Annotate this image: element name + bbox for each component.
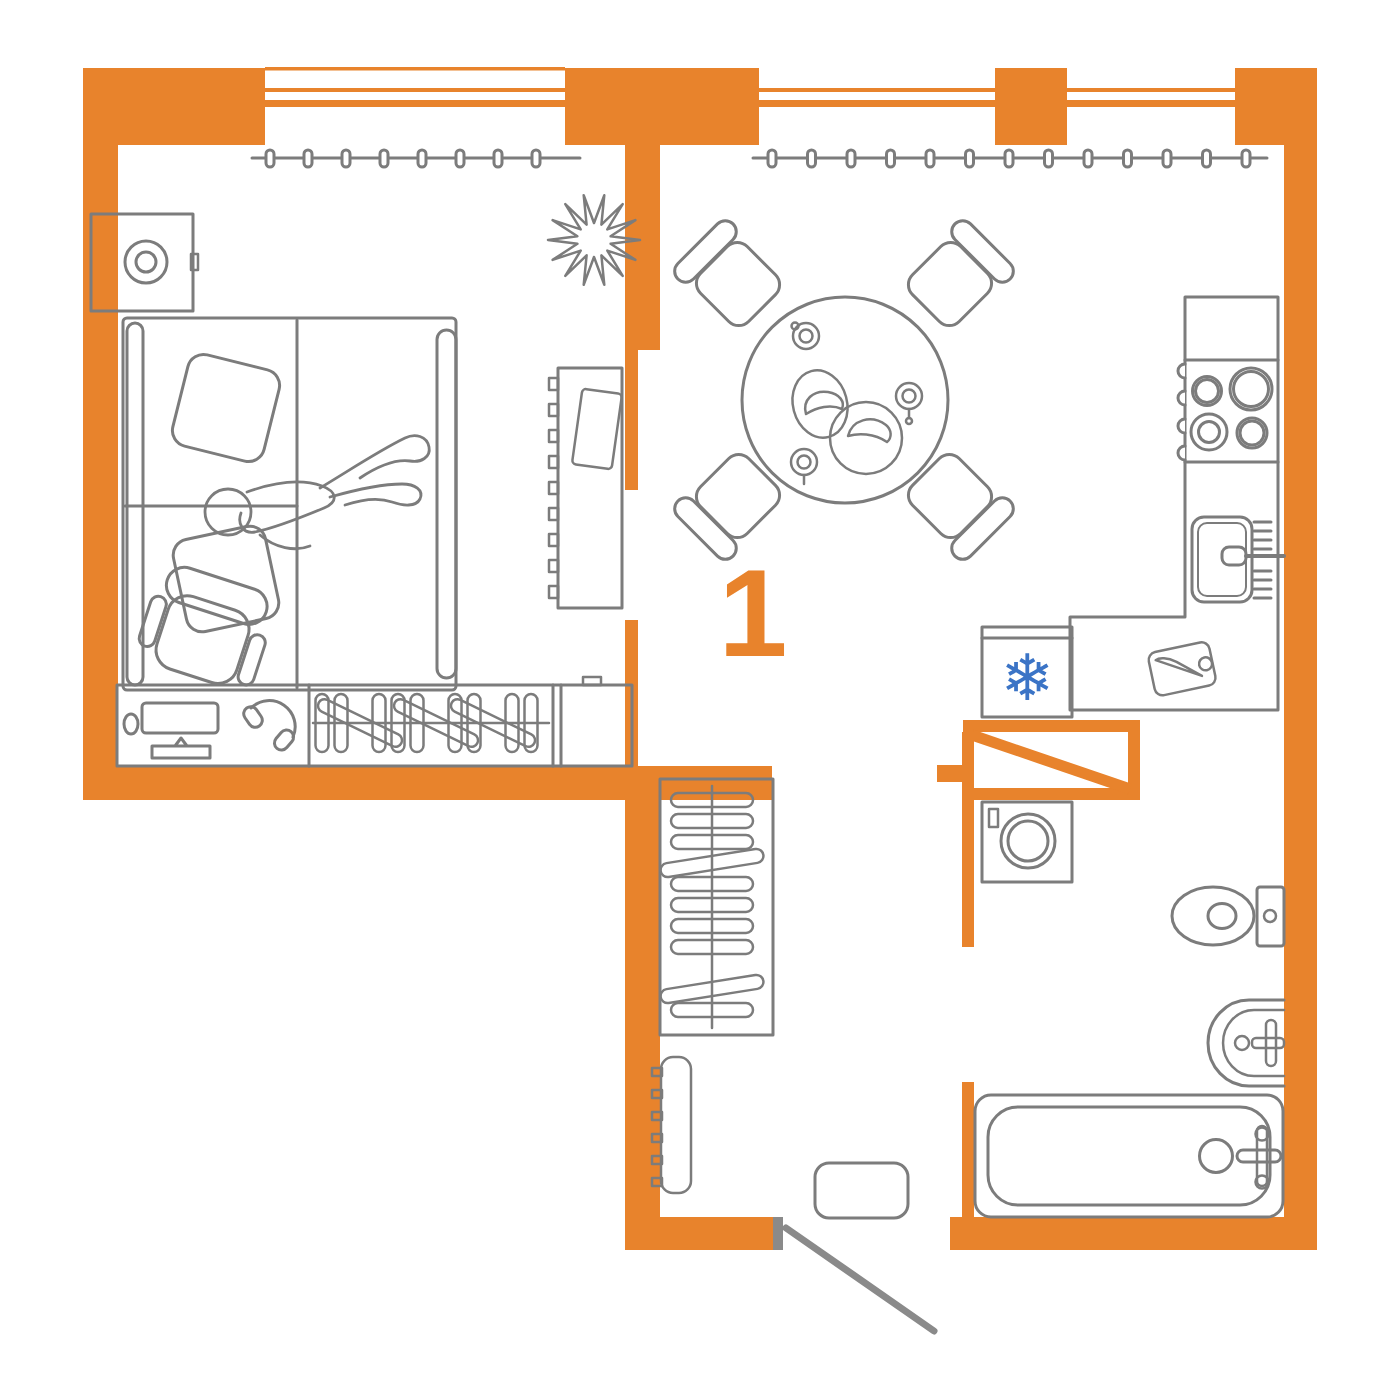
entrance-door [773, 1217, 934, 1331]
living-room [670, 150, 1267, 564]
pillow [169, 351, 283, 465]
footboard [437, 330, 456, 678]
basin-faucet-icon [1266, 1020, 1276, 1066]
wall-divider-thick [625, 145, 660, 350]
wall-stub-hallway [937, 765, 963, 782]
dining-chair [898, 444, 1018, 564]
dresser [549, 368, 622, 608]
doormat [815, 1163, 908, 1218]
wall-bedroom-bottom [83, 766, 772, 800]
wall-bathroom-bottom [950, 1217, 1317, 1250]
wall-hallway-bottom [625, 1217, 783, 1250]
dining-chair [670, 216, 790, 336]
fridge: ❄ [982, 627, 1072, 717]
door-leaf-swing [786, 1228, 934, 1331]
mouse [124, 714, 138, 734]
cutting-board [1147, 641, 1217, 697]
kitchen-sink [1192, 517, 1284, 602]
hallway [652, 779, 908, 1218]
vent-shaft-bottom [963, 788, 1140, 800]
monitor [142, 703, 218, 758]
hall-wardrobe [660, 779, 773, 1035]
stove [1178, 364, 1272, 460]
faucet-icon [1222, 547, 1246, 565]
desk-chair [133, 560, 281, 695]
vent-shaft-diagonal [972, 735, 1130, 789]
window-living-1-frame-2 [759, 100, 995, 107]
wall-pier-top-middle [565, 68, 759, 145]
window-bedroom-outer-line [265, 67, 565, 71]
wall-hallway-left [625, 800, 660, 1250]
washbasin [1208, 1000, 1284, 1086]
walls [83, 67, 1317, 1250]
wall-right [1284, 68, 1317, 1250]
toilet [1172, 887, 1284, 946]
cabinet-knob [583, 677, 601, 685]
curtain-rail-living [753, 150, 1267, 167]
floor-plan-drawing: ❄ [0, 0, 1400, 1400]
sleeping-person [205, 436, 429, 549]
unit-number: 1 [703, 560, 803, 680]
window-bedroom-frame-1 [265, 88, 565, 92]
window-living-2-frame-2 [1067, 100, 1235, 107]
curtain-rail-bedroom [252, 150, 580, 167]
wall-divider-thin-upper [625, 350, 638, 490]
window-living-1-frame-1 [759, 88, 995, 92]
snowflake-icon: ❄ [1000, 641, 1054, 715]
door-jamb [773, 1217, 783, 1250]
bathroom [975, 802, 1284, 1217]
bed [123, 318, 456, 690]
headphones-icon [241, 701, 296, 753]
window-bedroom-frame-2 [265, 100, 565, 107]
folded-towel [572, 389, 622, 470]
kitchen: ❄ [982, 297, 1284, 717]
vent-shaft-top [963, 720, 1140, 732]
wall-left [83, 68, 118, 800]
floor-plan: ❄ [0, 0, 1400, 1400]
bedroom [91, 150, 640, 766]
wall-pier-top-right-1 [995, 68, 1067, 145]
wardrobe-hangers [313, 694, 549, 752]
bathtub [975, 1095, 1283, 1217]
washing-machine [982, 802, 1072, 882]
window-living-2-frame-1 [1067, 88, 1235, 92]
wall-bathroom-left-lower [962, 1082, 974, 1250]
dining-chair [898, 216, 1018, 336]
dining-table [742, 297, 948, 503]
wall-bathroom-left-upper [962, 732, 974, 947]
